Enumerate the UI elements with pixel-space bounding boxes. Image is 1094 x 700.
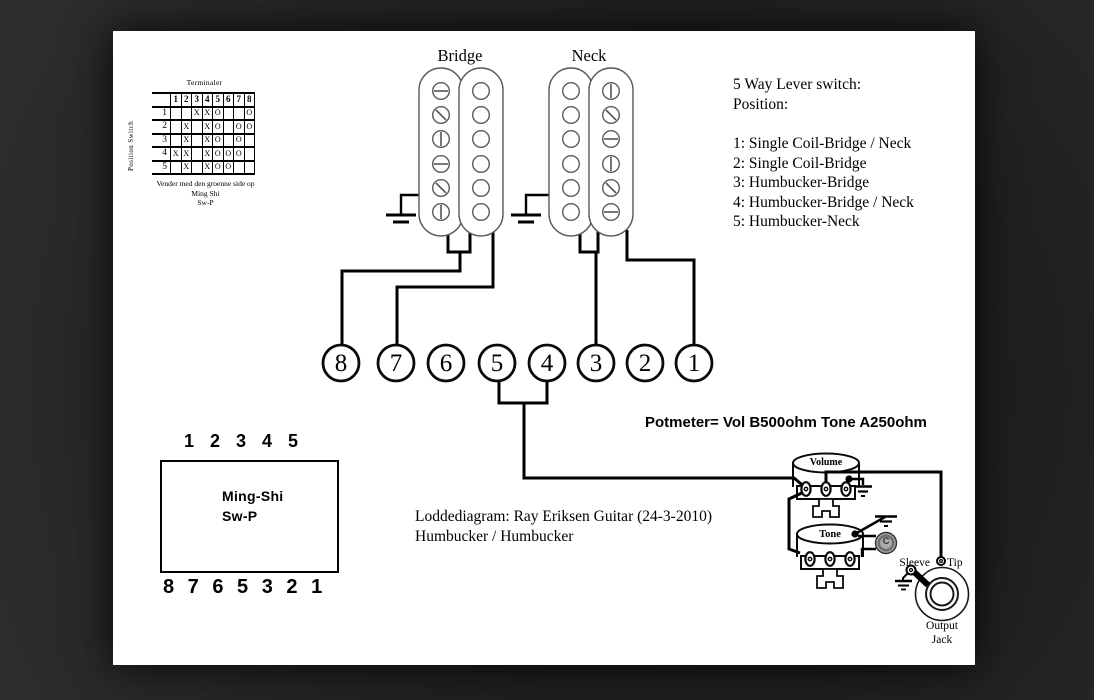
terminal-3: 3 bbox=[583, 350, 609, 379]
potmeter-note: Potmeter= Vol B500ohm Tone A250ohm bbox=[645, 414, 927, 431]
terminal-table-header-row: 1 2 3 4 5 6 7 8 bbox=[152, 93, 255, 107]
table-row: 5 X X O O bbox=[152, 161, 255, 175]
caption-line2: Humbucker / Humbucker bbox=[415, 528, 573, 546]
table-row: 4 X X X O O O bbox=[152, 147, 255, 161]
terminal-8: 8 bbox=[328, 350, 354, 379]
table-row: 1 X X O O bbox=[152, 107, 255, 121]
lever-position-1: 1: Single Coil-Bridge / Neck bbox=[733, 135, 914, 155]
neck-pickup bbox=[549, 68, 633, 236]
tone-ground-symbol bbox=[855, 517, 897, 535]
terminal-table-title: Terminaler bbox=[152, 79, 257, 88]
sleeve-label: Sleeve bbox=[890, 557, 930, 570]
table-footer-line2: Ming Shi bbox=[123, 190, 288, 199]
bridge-pickup-label: Bridge bbox=[420, 47, 500, 66]
pickup-wires bbox=[342, 230, 694, 345]
switch-bottom-numbers: 8 7 6 5 3 2 1 bbox=[163, 576, 326, 599]
sleeve-ground-symbol bbox=[895, 573, 912, 590]
capacitor-label: C bbox=[879, 537, 893, 548]
tip-label: Tip bbox=[947, 557, 963, 570]
lever-position-4: 4: Humbucker-Bridge / Neck bbox=[733, 194, 914, 214]
neck-ground-symbol bbox=[511, 195, 549, 222]
tone-pot-label: Tone bbox=[800, 529, 860, 541]
volume-lugs bbox=[801, 482, 850, 496]
terminal-table: 1 2 3 4 5 6 7 8 1 X X O O 2 bbox=[152, 92, 255, 175]
terminal-1: 1 bbox=[681, 350, 707, 379]
output-jack-label-line1: Output bbox=[902, 620, 982, 633]
switch-top-numbers: 1 2 3 4 5 bbox=[184, 431, 304, 452]
table-row: 2 X X O O O bbox=[152, 120, 255, 134]
diagram-page: Terminaler 1 2 3 4 5 6 7 8 1 X X O bbox=[113, 31, 975, 665]
lever-position-2: 2: Single Coil-Bridge bbox=[733, 155, 914, 175]
terminal-4: 4 bbox=[534, 350, 560, 379]
terminal-5: 5 bbox=[484, 350, 510, 379]
position-switch-label: Position Switch bbox=[127, 121, 135, 171]
lever-switch-title: 5 Way Lever switch: bbox=[733, 76, 861, 94]
table-footer-line3: Sw-P bbox=[123, 199, 288, 208]
bridge-ground-symbol bbox=[386, 195, 419, 222]
lever-switch-subtitle: Position: bbox=[733, 96, 788, 114]
lever-switch-positions: 1: Single Coil-Bridge / Neck 2: Single C… bbox=[733, 135, 914, 233]
output-jack-label-line2: Jack bbox=[902, 634, 982, 647]
switch-to-volume-wire bbox=[499, 381, 807, 489]
table-footer-line1: Vender med den groenne side op bbox=[123, 180, 288, 189]
terminal-6: 6 bbox=[433, 350, 459, 379]
terminal-2: 2 bbox=[632, 350, 658, 379]
caption-line1: Loddediagram: Ray Eriksen Guitar (24-3-2… bbox=[415, 508, 712, 526]
tone-lugs bbox=[805, 552, 854, 566]
lever-position-5: 5: Humbucker-Neck bbox=[733, 213, 914, 233]
bridge-pickup bbox=[419, 68, 503, 236]
switch-body-model: Sw-P bbox=[222, 506, 257, 526]
tip-lug bbox=[937, 557, 945, 565]
terminal-7: 7 bbox=[383, 350, 409, 379]
volume-pot-label: Volume bbox=[796, 457, 856, 469]
table-row: 3 X X O O bbox=[152, 134, 255, 148]
screenshot-stage: Terminaler 1 2 3 4 5 6 7 8 1 X X O bbox=[0, 0, 1094, 700]
switch-body-name: Ming-Shi bbox=[222, 486, 284, 506]
lever-position-3: 3: Humbucker-Bridge bbox=[733, 174, 914, 194]
neck-pickup-label: Neck bbox=[549, 47, 629, 66]
